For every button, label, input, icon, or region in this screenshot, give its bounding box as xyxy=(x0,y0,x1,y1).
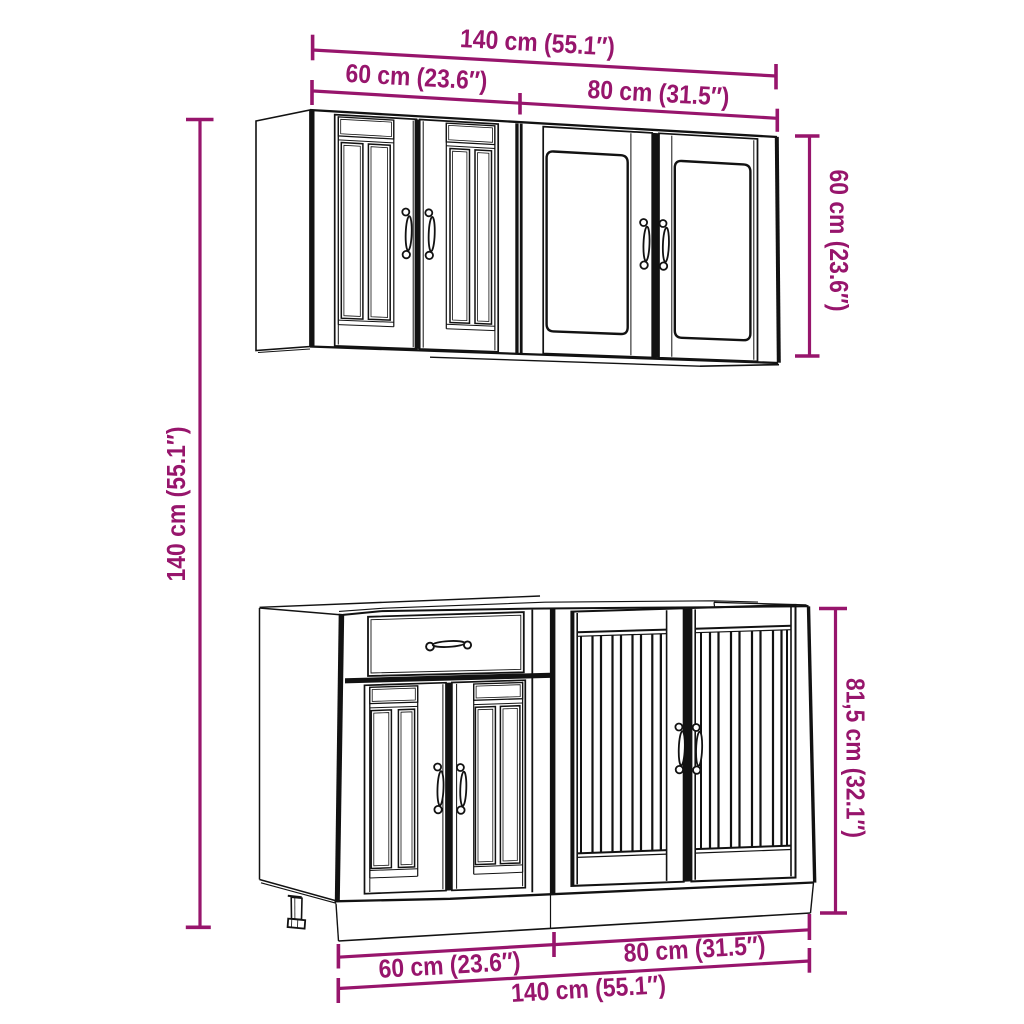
svg-text:140 cm (55.1″): 140 cm (55.1″) xyxy=(161,427,191,582)
svg-text:81,5 cm (32.1″): 81,5 cm (32.1″) xyxy=(841,678,871,838)
svg-text:60 cm (23.6″): 60 cm (23.6″) xyxy=(824,170,854,312)
